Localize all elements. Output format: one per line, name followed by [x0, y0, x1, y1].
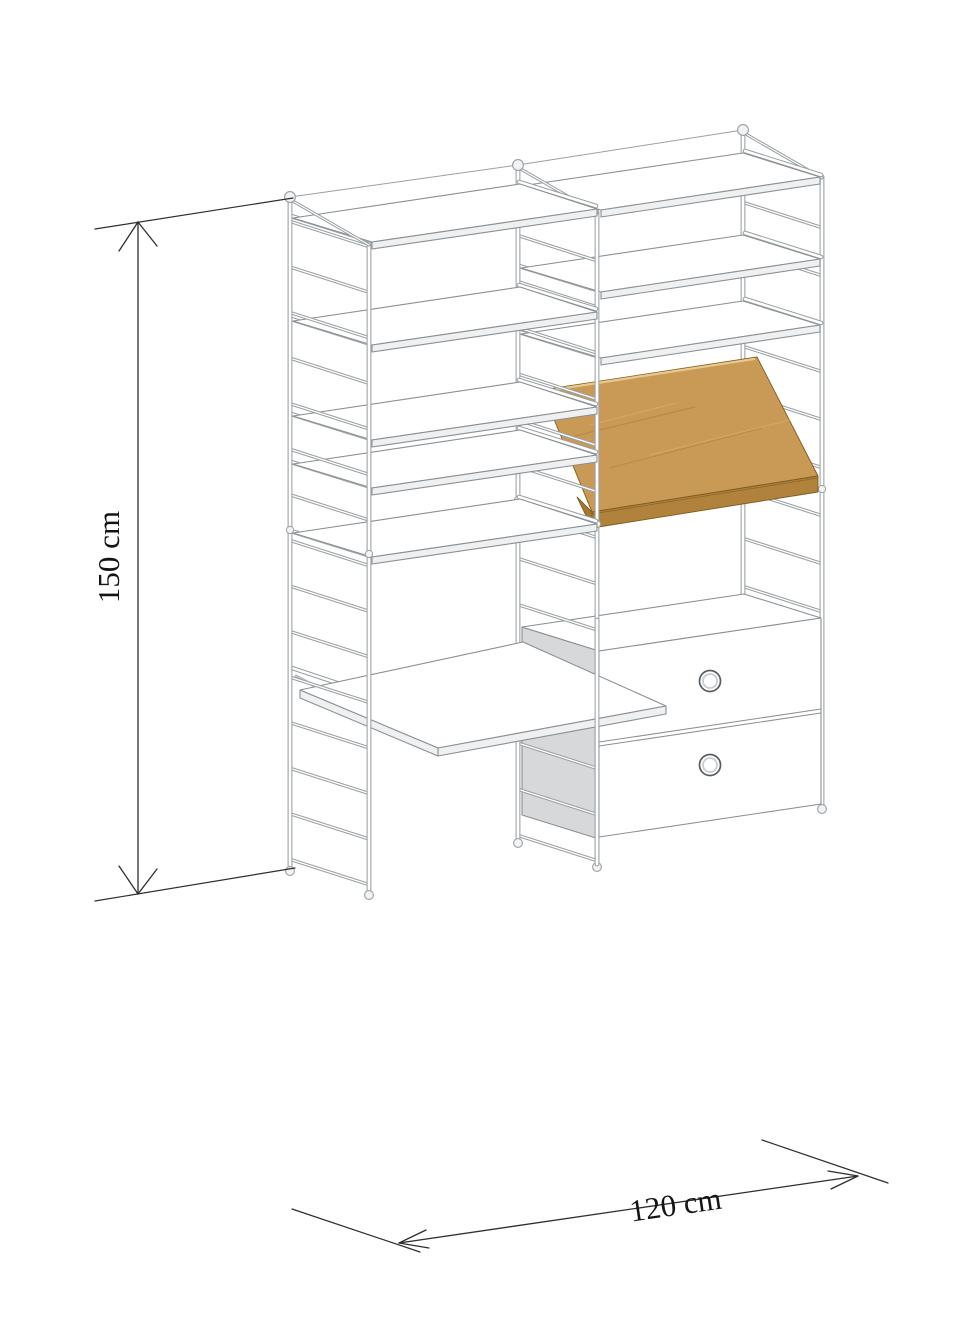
furniture-dimension-page: 150 cm 120 cm — [0, 0, 960, 1342]
width-dimension-label: 120 cm — [627, 1181, 723, 1229]
furniture-dimension-diagram: 150 cm 120 cm — [0, 0, 960, 1342]
shelf — [291, 428, 597, 495]
shelf — [519, 233, 821, 299]
height-dimension-label: 150 cm — [91, 511, 126, 603]
shelf — [291, 182, 597, 249]
drawer-knob — [700, 671, 721, 692]
shelving-unit-drawing — [285, 125, 827, 900]
width-dimension — [292, 1140, 888, 1252]
drawer-knob — [700, 755, 721, 776]
